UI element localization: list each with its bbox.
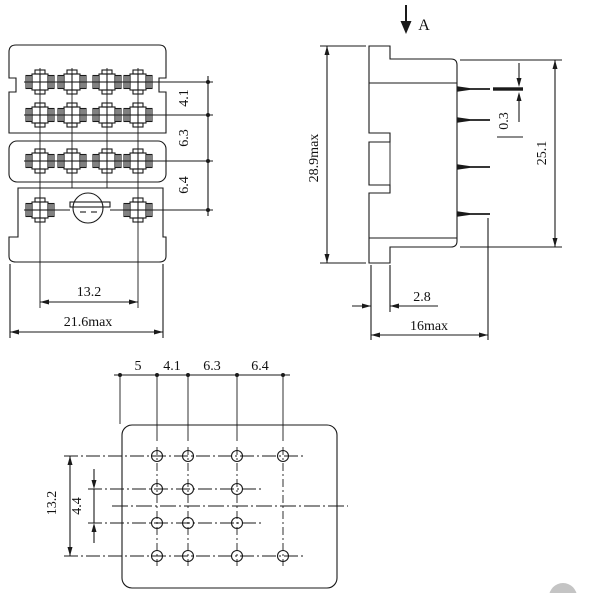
front-dim-label-6-4: 6.4	[177, 176, 192, 194]
section-arrow-a	[401, 5, 412, 34]
side-dim-label-0-3: 0.3	[497, 112, 512, 130]
side-body-outline	[369, 46, 457, 263]
technical-drawing-page: 4.1 6.3 6.4 13.2 21.6max A 28.9max 0.3 2…	[0, 0, 600, 593]
bottom-view	[64, 373, 348, 588]
front-dim-label-13-2: 13.2	[77, 285, 102, 300]
side-dim-28-9max	[320, 46, 366, 263]
side-internal-lines	[369, 83, 457, 238]
side-dim-label-2-8: 2.8	[413, 290, 431, 305]
bottom-dim-label-4-4: 4.4	[70, 497, 85, 515]
bottom-centerlines	[64, 447, 348, 566]
bottom-dim-4-4	[92, 469, 97, 543]
bottom-body-outline	[122, 425, 337, 588]
side-dim-label-16max: 16max	[410, 319, 448, 334]
labels: 4.1 6.3 6.4 13.2 21.6max A 28.9max 0.3 2…	[45, 17, 550, 515]
bottom-dim-label-13-2: 13.2	[45, 491, 60, 516]
side-dim-label-25-1: 25.1	[535, 141, 550, 166]
bottom-chain-label-5: 5	[135, 359, 142, 374]
bottom-pitch-chain	[114, 373, 290, 441]
front-row-dimension-chain	[206, 76, 210, 216]
drawing-canvas: 4.1 6.3 6.4 13.2 21.6max A 28.9max 0.3 2…	[0, 0, 600, 593]
side-dim-label-28-9max: 28.9max	[307, 134, 322, 183]
side-view	[320, 5, 562, 340]
front-lower-body-outline	[9, 188, 166, 262]
side-pins	[457, 86, 523, 217]
front-center-screw	[70, 193, 110, 223]
bottom-chain-label-6-4: 6.4	[251, 359, 269, 374]
front-dim-label-6-3: 6.3	[177, 129, 192, 147]
watermark-circle	[549, 583, 577, 593]
front-dim-13-2	[40, 300, 138, 305]
section-label-a: A	[418, 17, 430, 34]
front-dim-label-21-6max: 21.6max	[64, 315, 113, 330]
bottom-chain-label-6-3: 6.3	[203, 359, 221, 374]
front-dim-label-4-1: 4.1	[177, 89, 192, 107]
bottom-chain-label-4-1: 4.1	[163, 359, 181, 374]
front-terminals	[26, 70, 152, 222]
